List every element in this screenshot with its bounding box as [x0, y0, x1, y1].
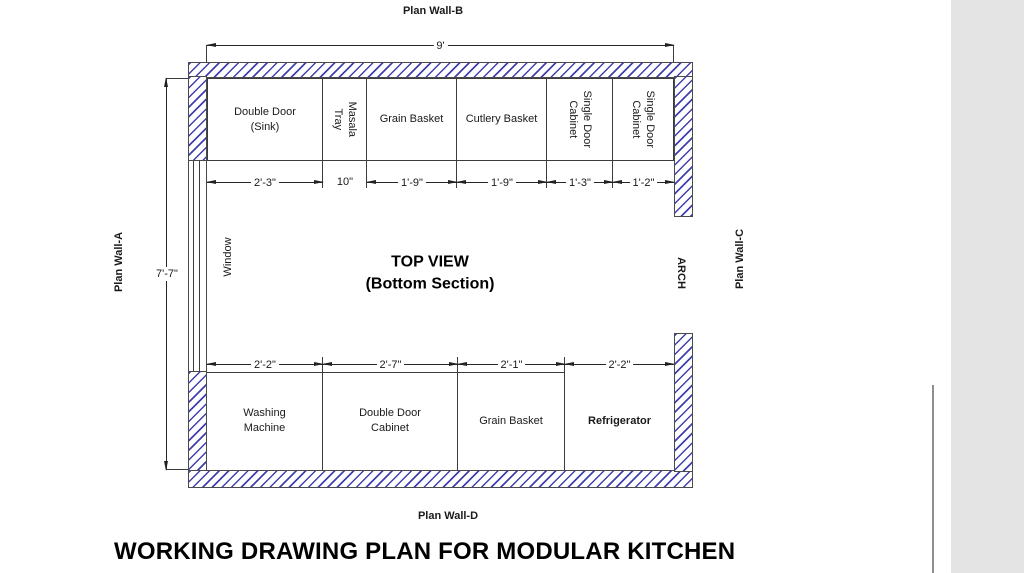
dimension-bottom-1: 2'-2": [207, 364, 323, 365]
dimension-top-1: 2'-3": [207, 182, 323, 183]
dim-arrow-left-icon: [206, 362, 216, 366]
cabinet-single-door-1: Single Door Cabinet: [547, 79, 613, 160]
cabinet-double-door-sink: Double Door (Sink): [208, 79, 323, 160]
cabinet-grain-basket-bottom: Grain Basket: [458, 372, 565, 470]
bottom-cabinet-row: Washing Machine Double Door Cabinet Grai…: [207, 372, 674, 470]
dim-arrow-down-icon: [164, 461, 168, 471]
wall-label-right: Plan Wall-C: [734, 229, 746, 289]
cabinet-label: Masala Tray: [330, 98, 359, 141]
drawing-canvas: Plan Wall-B Plan Wall-A Plan Wall-C Plan…: [0, 0, 1024, 573]
wall-left-lower: [188, 371, 207, 472]
dimension-top-3: 1'-9": [367, 182, 457, 183]
dim-arrow-up-icon: [164, 77, 168, 87]
dimension-bottom-4: 2'-2": [565, 364, 674, 365]
extension-line: [166, 469, 188, 470]
dim-arrow-right-icon: [665, 180, 675, 184]
arch-label: ARCH: [675, 257, 687, 289]
dimension-overall-width: 9': [207, 45, 674, 46]
dimension-label: 10": [334, 176, 356, 188]
dimension-label: 1'-2": [630, 177, 658, 189]
wall-top: [188, 62, 693, 78]
dimension-label: 7'-7": [154, 267, 180, 281]
dimension-top-5: 1'-3": [547, 182, 613, 183]
view-title: TOP VIEW (Bottom Section): [366, 252, 495, 297]
dim-arrow-right-icon: [665, 362, 675, 366]
dimension-label: 2'-7": [377, 359, 405, 371]
extension-line: [673, 45, 674, 62]
dim-arrow-left-icon: [612, 180, 622, 184]
cabinet-single-door-2: Single Door Cabinet: [613, 79, 673, 160]
cabinet-double-door: Double Door Cabinet: [323, 372, 458, 470]
dimension-label: 1'-9": [488, 177, 516, 189]
wall-bottom: [188, 470, 693, 488]
dim-arrow-left-icon: [546, 180, 556, 184]
dimension-top-4: 1'-9": [457, 182, 547, 183]
extension-line: [166, 78, 188, 79]
dimension-bottom-3: 2'-1": [458, 364, 565, 365]
cabinet-masala-tray: Masala Tray: [323, 79, 367, 160]
dimension-label: 9': [433, 40, 447, 52]
wall-label-bottom: Plan Wall-D: [418, 510, 478, 522]
background-gray-strip: [951, 0, 1024, 573]
dim-arrow-left-icon: [206, 180, 216, 184]
window-pane-line: [193, 161, 194, 371]
dim-arrow-right-icon: [314, 180, 324, 184]
cabinet-refrigerator: Refrigerator: [565, 372, 674, 470]
dim-arrow-left-icon: [564, 362, 574, 366]
window-label: Window: [222, 237, 234, 276]
dim-arrow-left-icon: [206, 43, 216, 47]
cabinet-washing-machine: Washing Machine: [207, 372, 323, 470]
top-cabinet-row: Double Door (Sink) Masala Tray Grain Bas…: [207, 78, 674, 161]
dimension-label: 2'-2": [606, 359, 634, 371]
page-edge-line: [932, 385, 934, 573]
wall-label-left: Plan Wall-A: [113, 232, 125, 292]
dim-arrow-right-icon: [665, 43, 675, 47]
wall-left-upper: [188, 76, 207, 161]
dim-arrow-left-icon: [457, 362, 467, 366]
dimension-label: 2'-3": [251, 177, 279, 189]
dimension-label: 1'-9": [398, 177, 426, 189]
dim-arrow-left-icon: [456, 180, 466, 184]
cabinet-label: Single Door Cabinet: [565, 91, 594, 148]
dimension-top-6: 1'-2": [613, 182, 674, 183]
sheet-title: WORKING DRAWING PLAN FOR MODULAR KITCHEN: [114, 538, 735, 566]
window-symbol: [188, 160, 207, 372]
cabinet-grain-basket-top: Grain Basket: [367, 79, 457, 160]
dimension-label: 1'-3": [566, 177, 594, 189]
dimension-label: 2'-2": [251, 359, 279, 371]
dim-arrow-left-icon: [366, 180, 376, 184]
wall-right-upper: [674, 76, 693, 217]
cabinet-label: Single Door Cabinet: [629, 91, 658, 148]
window-pane-line: [199, 161, 200, 371]
cabinet-cutlery-basket: Cutlery Basket: [457, 79, 547, 160]
dimension-label: 2'-1": [498, 359, 526, 371]
wall-label-top: Plan Wall-B: [403, 5, 463, 17]
dimension-overall-height: 7'-7": [166, 78, 167, 470]
dimension-bottom-2: 2'-7": [323, 364, 458, 365]
wall-right-lower: [674, 333, 693, 472]
dim-arrow-left-icon: [322, 362, 332, 366]
extension-line: [206, 45, 207, 62]
